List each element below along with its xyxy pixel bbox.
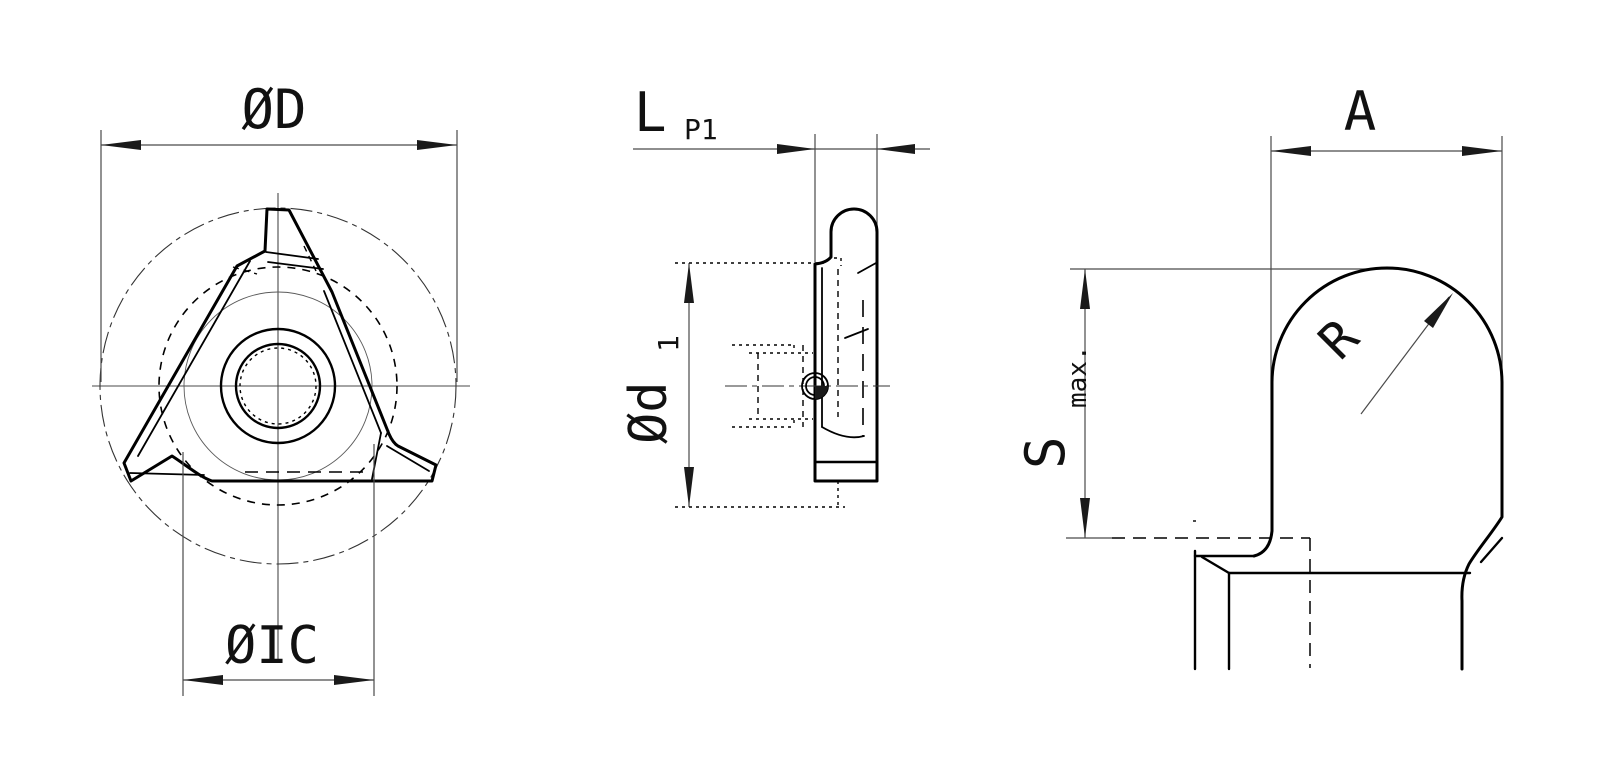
a-arrow-left	[1271, 146, 1311, 156]
d1-label-subscript: 1	[652, 335, 685, 352]
tip-dome-outline	[1254, 268, 1502, 669]
d1-arrow-up	[684, 263, 694, 303]
land-line-right-flank	[324, 291, 381, 433]
od-arrow-left	[101, 140, 141, 150]
side-chamfer-top	[858, 263, 876, 273]
r-label: R	[1307, 308, 1370, 371]
side-body-outline	[815, 209, 877, 481]
workpiece-profile	[1195, 551, 1470, 669]
d1-label: Ød	[619, 381, 679, 444]
p1-arrow-right	[877, 144, 915, 154]
dimension-d1: Ød 1	[619, 263, 845, 507]
ic-arrow-left	[183, 675, 223, 685]
s-arrow-up	[1080, 269, 1090, 309]
a-arrow-right	[1462, 146, 1502, 156]
od-label: ØD	[241, 78, 306, 141]
front-view: ØD ØIC	[92, 78, 470, 696]
ic-arrow-right	[334, 675, 374, 685]
d1-arrow-down	[684, 467, 694, 507]
detail-view: A S max.	[1014, 80, 1502, 669]
od-arrow-right	[417, 140, 457, 150]
side-view: L P1 Ød 1	[619, 81, 930, 507]
side-back-edge	[845, 329, 868, 338]
s-label-suffix: max.	[1063, 345, 1093, 408]
dimension-od: ØD	[101, 78, 457, 382]
r-leader-arrow	[1424, 293, 1453, 328]
s-arrow-down	[1080, 498, 1090, 538]
side-bottom-curve	[822, 427, 864, 437]
length-label: L	[634, 81, 667, 144]
ic-label: ØIC	[225, 616, 319, 676]
s-label: S	[1014, 436, 1077, 469]
side-hidden-corner	[834, 258, 841, 266]
side-hidden-hole	[725, 269, 890, 507]
technical-drawing-sheet: ØD ØIC L P1 Ød	[0, 0, 1600, 760]
technical-drawing: ØD ØIC L P1 Ød	[0, 0, 1600, 760]
screw-hole-quadrant-fill	[815, 386, 828, 399]
p1-arrow-left	[777, 144, 815, 154]
land-line-left-flank	[138, 261, 250, 456]
a-label: A	[1344, 80, 1377, 143]
radius-callout: R	[1307, 293, 1453, 414]
pitch-label: P1	[684, 113, 718, 146]
dimension-a: A	[1271, 80, 1502, 400]
dimension-p1: L P1	[633, 81, 930, 262]
workpiece-chamfer	[1202, 557, 1229, 573]
